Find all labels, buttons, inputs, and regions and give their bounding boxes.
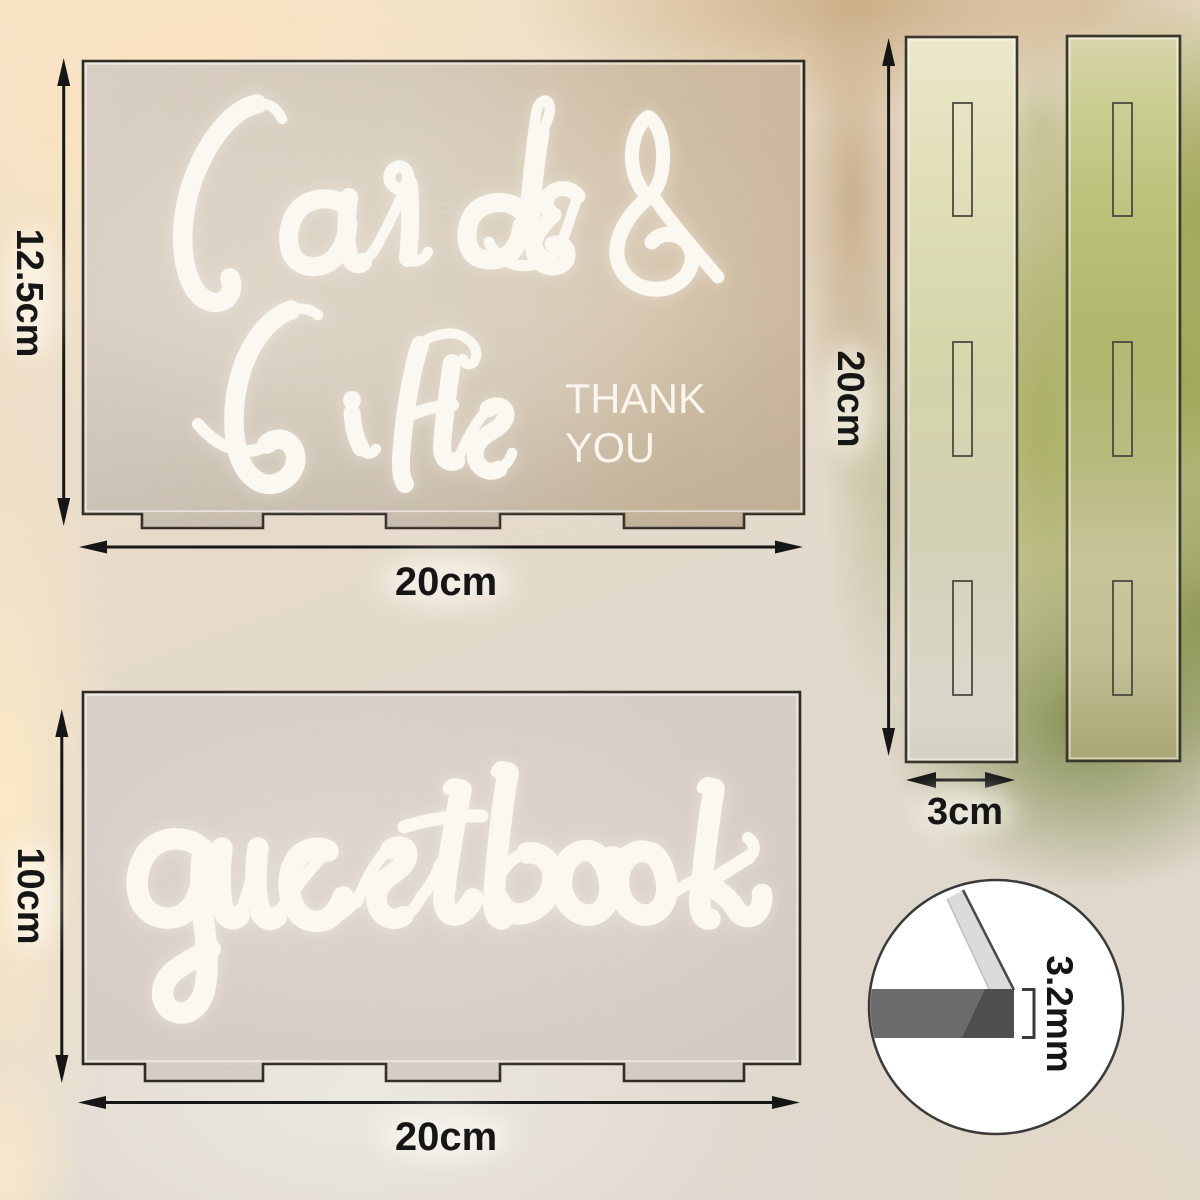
svg-text:20cm: 20cm bbox=[395, 560, 497, 604]
svg-text:THANK: THANK bbox=[565, 375, 706, 422]
svg-text:12.5cm: 12.5cm bbox=[8, 229, 50, 358]
svg-text:YOU: YOU bbox=[565, 424, 655, 471]
svg-text:20cm: 20cm bbox=[395, 1115, 497, 1159]
svg-text:20cm: 20cm bbox=[829, 350, 871, 447]
svg-text:10cm: 10cm bbox=[9, 847, 51, 944]
svg-text:3cm: 3cm bbox=[927, 791, 1003, 833]
svg-text:3.2mm: 3.2mm bbox=[1039, 955, 1080, 1072]
